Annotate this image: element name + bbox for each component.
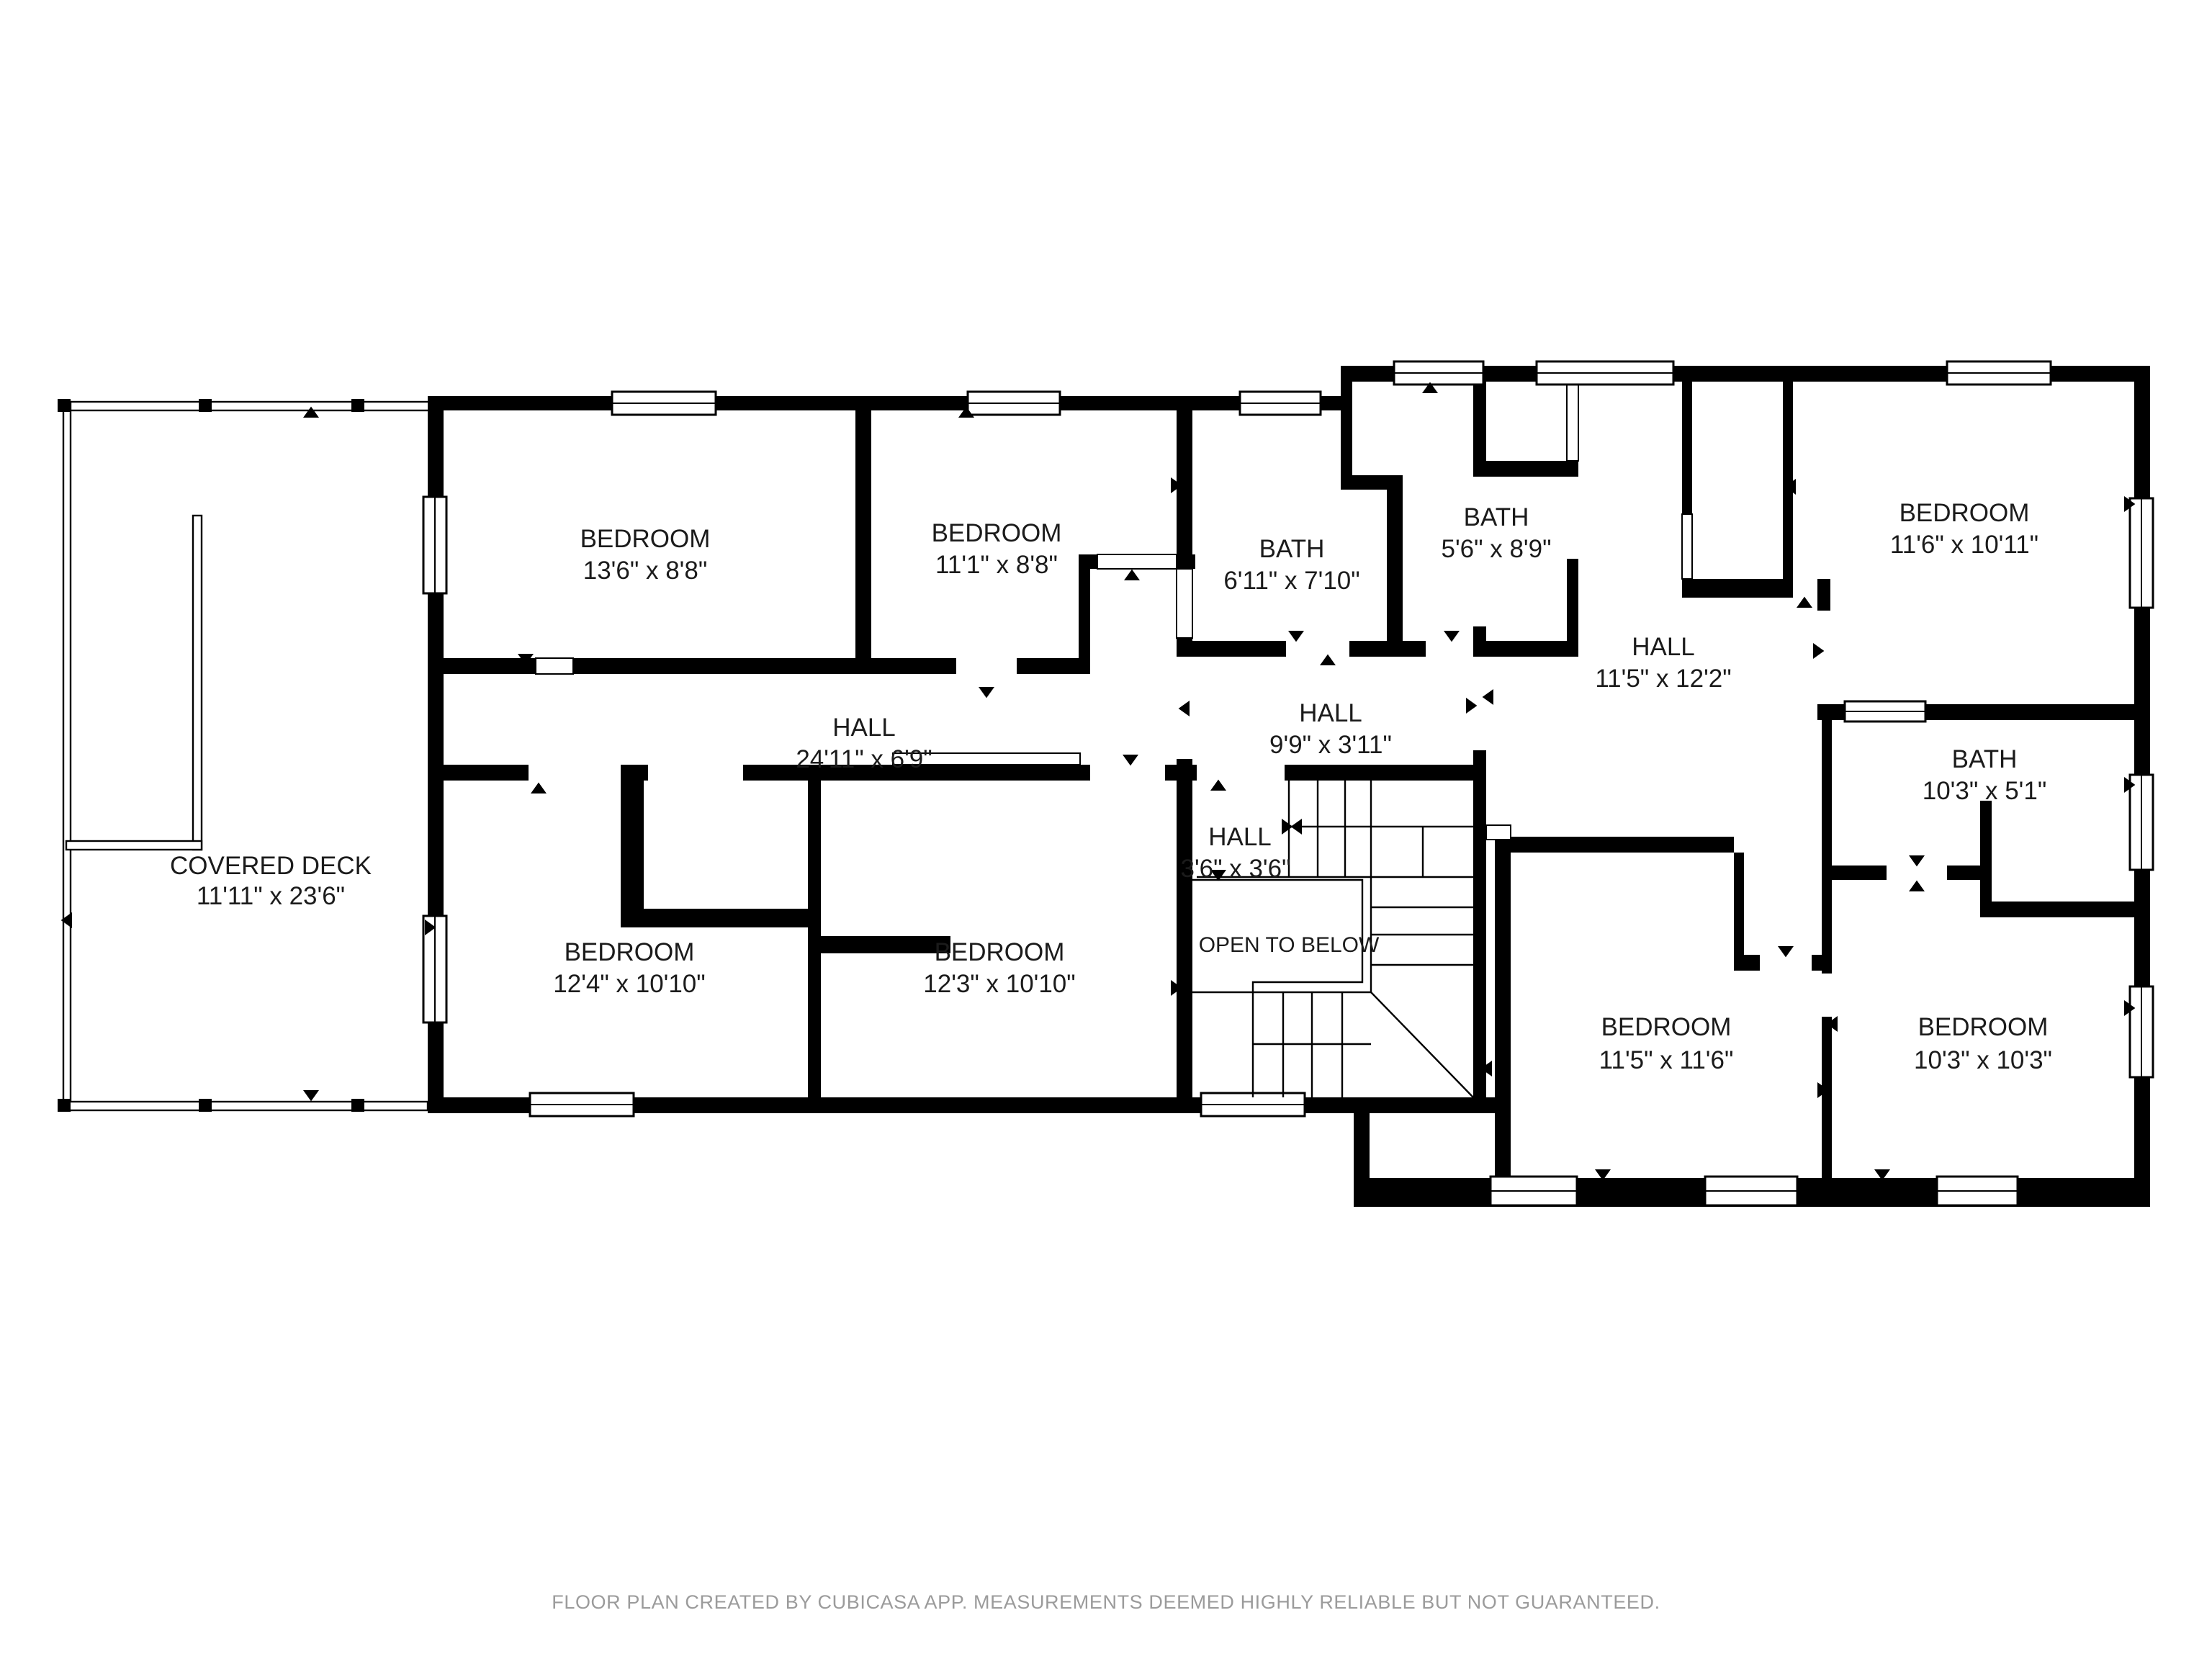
svg-text:11'11" x 23'6": 11'11" x 23'6" [197, 882, 345, 910]
door-swing-marker [1210, 780, 1226, 791]
door-swing-marker [303, 1090, 319, 1101]
svg-text:BATH: BATH [1259, 535, 1325, 563]
svg-text:BATH: BATH [1952, 745, 2018, 773]
svg-text:11'1" x 8'8": 11'1" x 8'8" [935, 551, 1058, 579]
door-swing-marker [1179, 701, 1190, 716]
svg-text:HALL: HALL [1632, 633, 1695, 661]
door-swing-marker [1813, 643, 1824, 659]
room-label-bedroom-bot-left: BEDROOM 12'4" x 10'10" [553, 938, 705, 998]
svg-text:COVERED DECK: COVERED DECK [170, 852, 372, 880]
door-swing-marker [1124, 570, 1140, 580]
svg-text:BEDROOM: BEDROOM [565, 938, 695, 966]
floor-plan: BEDROOM 13'6" x 8'8" BEDROOM 11'1" x 8'8… [0, 0, 2212, 1659]
room-label-hall-mid: HALL 9'9" x 3'11" [1269, 699, 1392, 759]
door-swing-marker [1909, 855, 1925, 866]
svg-text:13'6" x 8'8": 13'6" x 8'8" [583, 557, 708, 585]
door-swing-marker [1282, 819, 1292, 835]
svg-text:11'5" x 12'2": 11'5" x 12'2" [1595, 665, 1731, 693]
covered-deck-structure [58, 399, 431, 1112]
door-openings [536, 382, 1692, 840]
deck-posts [58, 399, 364, 1112]
svg-text:HALL: HALL [1208, 823, 1272, 851]
room-label-bedroom-bot-right2: BEDROOM 10'3" x 10'3" [1914, 1013, 2052, 1074]
room-label-bedroom-top-right: BEDROOM 11'6" x 10'11" [1890, 499, 2038, 559]
svg-text:10'3" x 5'1": 10'3" x 5'1" [1923, 777, 2047, 805]
door-swing-marker [1909, 881, 1925, 891]
door-swing-marker [979, 687, 994, 698]
svg-text:BEDROOM: BEDROOM [932, 519, 1062, 547]
room-label-bath-right: BATH 10'3" x 5'1" [1923, 745, 2047, 805]
door-swing-marker [1123, 755, 1138, 765]
door-swing-marker [1797, 597, 1812, 608]
svg-text:BATH: BATH [1464, 503, 1529, 531]
door-swing-marker [1483, 689, 1493, 705]
room-label-bedroom-top-mid: BEDROOM 11'1" x 8'8" [932, 519, 1062, 579]
door-swing-marker [1288, 631, 1304, 642]
door-swing-marker [1320, 655, 1336, 665]
svg-text:6'11" x 7'10": 6'11" x 7'10" [1223, 567, 1359, 595]
svg-text:5'6" x 8'9": 5'6" x 8'9" [1441, 535, 1551, 563]
svg-text:11'5" x 11'6": 11'5" x 11'6" [1599, 1046, 1734, 1074]
room-label-bath-mid-left: BATH 6'11" x 7'10" [1223, 535, 1359, 595]
room-label-bedroom-bot-right1: BEDROOM 11'5" x 11'6" [1599, 1013, 1734, 1074]
svg-text:BEDROOM: BEDROOM [1899, 499, 2030, 527]
room-label-bath-mid-right: BATH 5'6" x 8'9" [1441, 503, 1551, 563]
room-label-hall-left: HALL 24'11" x 6'9" [796, 714, 932, 773]
room-label-bedroom-bot-mid: BEDROOM 12'3" x 10'10" [923, 938, 1075, 998]
svg-text:BEDROOM: BEDROOM [935, 938, 1065, 966]
room-label-bedroom-top-left: BEDROOM 13'6" x 8'8" [580, 525, 711, 585]
svg-text:BEDROOM: BEDROOM [1918, 1013, 2049, 1041]
svg-text:HALL: HALL [1299, 699, 1362, 727]
door-swing-marker [1466, 698, 1477, 714]
room-label-covered-deck: COVERED DECK 11'11" x 23'6" [170, 852, 372, 910]
svg-text:10'3" x 10'3": 10'3" x 10'3" [1914, 1046, 2052, 1074]
svg-text:BEDROOM: BEDROOM [580, 525, 711, 553]
svg-text:3'6" x 3'6": 3'6" x 3'6" [1180, 855, 1290, 883]
door-swing-marker [531, 783, 547, 793]
open-to-below-label: OPEN TO BELOW [1199, 933, 1380, 957]
room-label-hall-right: HALL 11'5" x 12'2" [1595, 633, 1731, 693]
svg-text:11'6" x 10'11": 11'6" x 10'11" [1890, 531, 2038, 559]
svg-text:12'4" x 10'10": 12'4" x 10'10" [553, 970, 705, 998]
door-swing-marker [1444, 631, 1460, 642]
door-swing-marker [1778, 946, 1794, 957]
svg-text:HALL: HALL [832, 714, 896, 742]
svg-text:12'3" x 10'10": 12'3" x 10'10" [923, 970, 1075, 998]
svg-text:24'11" x 6'9": 24'11" x 6'9" [796, 745, 932, 773]
svg-text:9'9" x 3'11": 9'9" x 3'11" [1269, 731, 1392, 759]
footer-disclaimer: FLOOR PLAN CREATED BY CUBICASA APP. MEAS… [552, 1591, 1660, 1613]
room-label-hall-small: HALL 3'6" x 3'6" [1180, 823, 1290, 883]
svg-text:BEDROOM: BEDROOM [1601, 1013, 1732, 1041]
